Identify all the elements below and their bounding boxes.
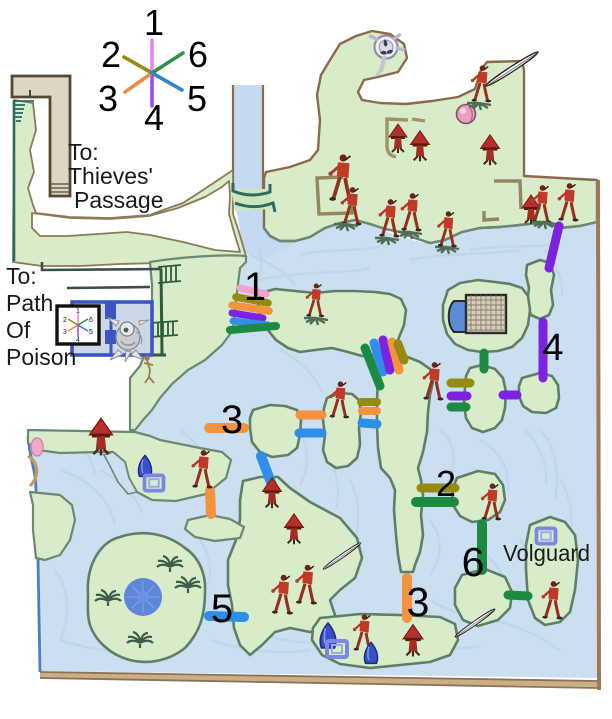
svg-text:Thieves': Thieves' <box>68 163 153 189</box>
svg-text:6: 6 <box>188 34 208 75</box>
svg-text:3: 3 <box>221 398 243 442</box>
svg-text:Poison: Poison <box>6 344 76 370</box>
svg-text:3: 3 <box>98 78 118 119</box>
svg-text:6: 6 <box>89 317 93 324</box>
svg-text:To:: To: <box>6 263 37 289</box>
svg-text:Volguard: Volguard <box>503 540 590 566</box>
svg-text:Of: Of <box>6 317 31 343</box>
svg-text:3: 3 <box>407 579 430 625</box>
svg-text:2: 2 <box>63 317 67 324</box>
svg-text:2: 2 <box>101 34 121 75</box>
svg-text:5: 5 <box>89 329 93 336</box>
svg-text:4: 4 <box>144 97 164 138</box>
svg-text:To:: To: <box>68 139 99 165</box>
svg-text:4: 4 <box>542 327 563 369</box>
svg-text:1: 1 <box>76 308 80 315</box>
svg-text:1: 1 <box>244 265 266 309</box>
svg-text:Path: Path <box>6 290 53 316</box>
svg-text:4: 4 <box>76 337 80 344</box>
svg-text:5: 5 <box>211 587 233 631</box>
svg-text:1: 1 <box>144 2 164 43</box>
svg-text:Passage: Passage <box>74 187 164 213</box>
svg-text:6: 6 <box>462 539 485 585</box>
svg-text:3: 3 <box>63 329 67 336</box>
svg-text:5: 5 <box>187 78 207 119</box>
svg-text:2: 2 <box>436 463 456 504</box>
